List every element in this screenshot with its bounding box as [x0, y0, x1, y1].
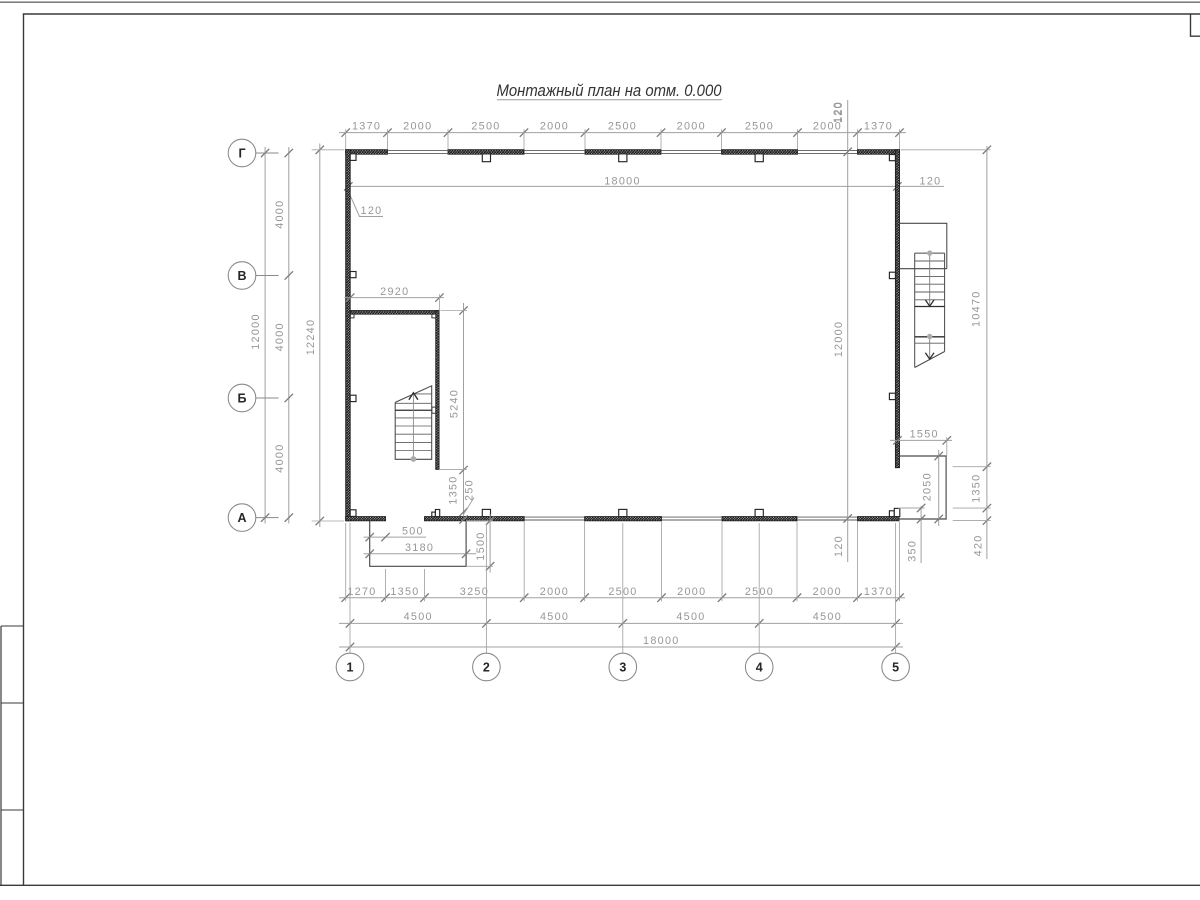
svg-text:Монтажный план на отм. 0.000: Монтажный план на отм. 0.000: [497, 81, 723, 100]
svg-text:2500: 2500: [745, 121, 774, 133]
svg-text:3: 3: [619, 660, 626, 674]
svg-text:2000: 2000: [677, 121, 706, 133]
svg-text:4500: 4500: [676, 611, 705, 623]
svg-text:4500: 4500: [540, 611, 569, 623]
svg-text:2: 2: [483, 660, 490, 674]
svg-text:3250: 3250: [460, 586, 489, 598]
svg-text:350: 350: [907, 540, 919, 562]
svg-text:10470: 10470: [971, 290, 983, 327]
svg-text:2920: 2920: [380, 286, 409, 298]
svg-text:500: 500: [402, 526, 424, 538]
svg-text:2000: 2000: [540, 121, 569, 133]
svg-text:1270: 1270: [347, 586, 376, 598]
svg-text:1: 1: [347, 660, 354, 674]
svg-text:12000: 12000: [833, 321, 845, 358]
svg-text:120: 120: [920, 176, 942, 188]
svg-text:4: 4: [756, 660, 763, 674]
svg-text:2000: 2000: [540, 586, 569, 598]
svg-text:2500: 2500: [608, 121, 637, 133]
svg-text:1350: 1350: [390, 586, 419, 598]
svg-text:12000: 12000: [250, 313, 262, 350]
svg-text:В: В: [237, 269, 246, 283]
svg-text:2000: 2000: [677, 586, 706, 598]
svg-text:2000: 2000: [813, 586, 842, 598]
svg-text:Б: Б: [238, 391, 247, 405]
svg-text:Г: Г: [238, 146, 245, 160]
svg-text:4500: 4500: [404, 611, 433, 623]
svg-text:120: 120: [833, 101, 845, 123]
svg-text:2050: 2050: [921, 472, 933, 501]
svg-text:1370: 1370: [864, 121, 893, 133]
svg-text:1370: 1370: [352, 121, 381, 133]
svg-text:12240: 12240: [305, 319, 317, 356]
svg-text:А: А: [237, 511, 246, 525]
svg-text:3180: 3180: [405, 542, 434, 554]
svg-text:2500: 2500: [471, 121, 500, 133]
svg-text:420: 420: [972, 534, 984, 556]
svg-text:18000: 18000: [604, 176, 641, 188]
svg-text:18000: 18000: [643, 635, 680, 647]
svg-text:2000: 2000: [403, 121, 432, 133]
svg-text:5: 5: [892, 660, 899, 674]
svg-text:1350: 1350: [971, 474, 983, 503]
svg-text:120: 120: [833, 535, 845, 557]
svg-text:4500: 4500: [813, 611, 842, 623]
svg-text:120: 120: [361, 205, 383, 217]
svg-text:1550: 1550: [910, 429, 939, 441]
svg-text:4000: 4000: [274, 443, 286, 472]
svg-text:1370: 1370: [864, 586, 893, 598]
svg-text:5240: 5240: [449, 389, 461, 418]
svg-text:4000: 4000: [274, 322, 286, 351]
svg-text:1350: 1350: [447, 475, 459, 504]
svg-text:1500: 1500: [475, 531, 487, 560]
svg-text:4000: 4000: [274, 200, 286, 229]
